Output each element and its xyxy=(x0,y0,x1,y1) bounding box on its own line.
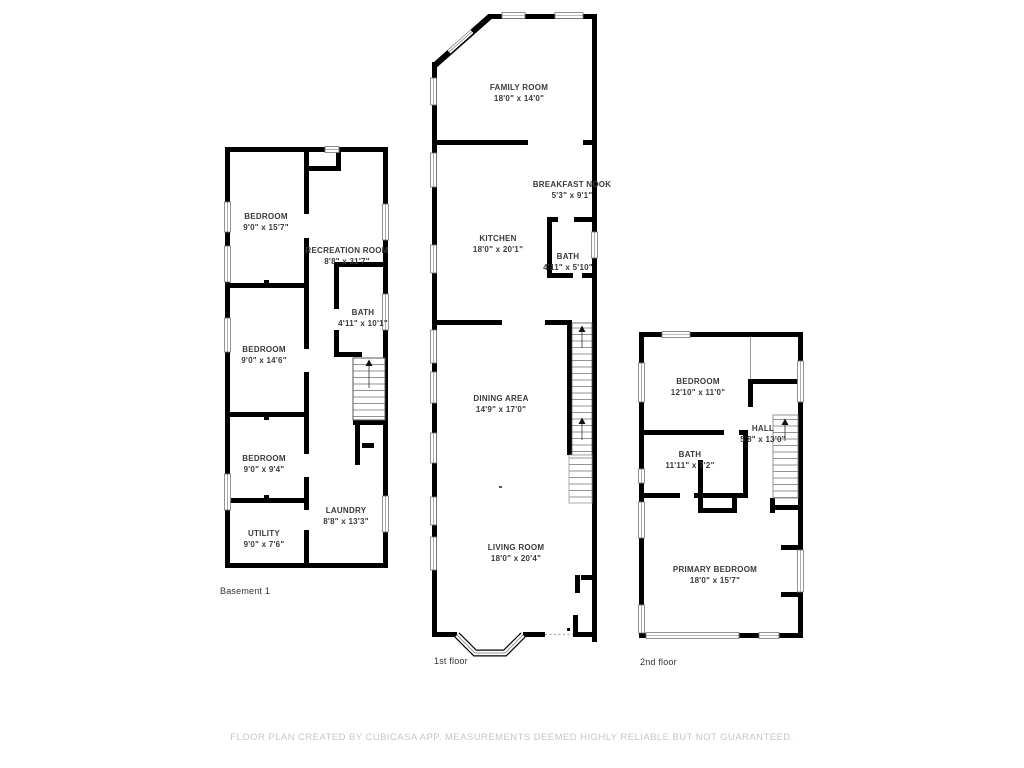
footer-disclaimer: FLOOR PLAN CREATED BY CUBICASA APP. MEAS… xyxy=(0,732,1024,743)
room-dims: 14'9" x 17'0" xyxy=(473,405,528,416)
room-name: HALL xyxy=(740,424,786,435)
first-floor-diagonal-wall xyxy=(434,17,490,67)
room-name: RECREATION ROOM xyxy=(305,246,388,257)
floor-label-basement: Basement 1 xyxy=(220,586,270,596)
room-dims: 18'0" x 20'4" xyxy=(488,554,545,565)
room-name: LIVING ROOM xyxy=(488,543,545,554)
room-name: UTILITY xyxy=(244,529,285,540)
room-dims: 11'11" x 7'2" xyxy=(665,461,714,472)
room-dims: 12'10" x 11'0" xyxy=(671,388,726,399)
room-dims: 9'0" x 7'6" xyxy=(244,540,285,551)
first-floor-stairs xyxy=(569,323,592,503)
room-label-second-floor-bath: BATH 11'11" x 7'2" xyxy=(665,450,714,471)
room-label-primary-bedroom: PRIMARY BEDROOM 18'0" x 15'7" xyxy=(673,565,757,586)
floorplan-first-floor xyxy=(428,10,602,670)
room-label-living-room: LIVING ROOM 18'0" x 20'4" xyxy=(488,543,545,564)
room-label-first-floor-bath: BATH 4'11" x 5'10" xyxy=(543,252,593,273)
room-label-basement-bath: BATH 4'11" x 10'1" xyxy=(338,308,388,329)
room-name: BEDROOM xyxy=(671,377,726,388)
room-name: BEDROOM xyxy=(242,454,286,465)
room-name: PRIMARY BEDROOM xyxy=(673,565,757,576)
floor-label-second-floor: 2nd floor xyxy=(640,657,677,667)
room-dims: 9'0" x 9'4" xyxy=(242,465,286,476)
room-name: BATH xyxy=(543,252,593,263)
room-name: FAMILY ROOM xyxy=(490,83,548,94)
bay-window xyxy=(457,635,573,654)
floor-label-first-floor: 1st floor xyxy=(434,656,468,666)
room-label-family-room: FAMILY ROOM 18'0" x 14'0" xyxy=(490,83,548,104)
room-dims: 9'0" x 15'7" xyxy=(243,223,289,234)
room-label-second-floor-bedroom: BEDROOM 12'10" x 11'0" xyxy=(671,377,726,398)
room-name: LAUNDRY xyxy=(323,506,369,517)
room-label-basement-utility: UTILITY 9'0" x 7'6" xyxy=(244,529,285,550)
room-name: BEDROOM xyxy=(241,345,287,356)
room-dims: 18'0" x 15'7" xyxy=(673,576,757,587)
basement-stairs xyxy=(353,358,385,420)
room-label-basement-bedroom-3: BEDROOM 9'0" x 9'4" xyxy=(242,454,286,475)
room-label-kitchen: KITCHEN 18'0" x 20'1" xyxy=(473,234,523,255)
room-label-breakfast-nook: BREAKFAST NOOK 5'3" x 9'1" xyxy=(533,180,612,201)
room-label-basement-recreation-room: RECREATION ROOM 8'8" x 31'7" xyxy=(305,246,388,267)
room-name: BEDROOM xyxy=(243,212,289,223)
room-name: DINING AREA xyxy=(473,394,528,405)
room-dims: 8'8" x 13'3" xyxy=(323,517,369,528)
room-label-basement-bedroom-1: BEDROOM 9'0" x 15'7" xyxy=(243,212,289,233)
room-name: BATH xyxy=(665,450,714,461)
room-label-dining-area: DINING AREA 14'9" x 17'0" xyxy=(473,394,528,415)
room-dims: 18'0" x 20'1" xyxy=(473,245,523,256)
room-name: BREAKFAST NOOK xyxy=(533,180,612,191)
room-dims: 4'11" x 10'1" xyxy=(338,319,388,330)
room-dims: 8'8" x 31'7" xyxy=(305,257,388,268)
room-dims: 9'0" x 14'6" xyxy=(241,356,287,367)
room-label-basement-laundry: LAUNDRY 8'8" x 13'3" xyxy=(323,506,369,527)
room-label-hall: HALL 5'8" x 13'0" xyxy=(740,424,786,445)
room-name: BATH xyxy=(338,308,388,319)
room-label-basement-bedroom-2: BEDROOM 9'0" x 14'6" xyxy=(241,345,287,366)
room-dims: 4'11" x 5'10" xyxy=(543,263,593,274)
room-dims: 18'0" x 14'0" xyxy=(490,94,548,105)
room-dims: 5'8" x 13'0" xyxy=(740,435,786,446)
room-dims: 5'3" x 9'1" xyxy=(533,191,612,202)
room-name: KITCHEN xyxy=(473,234,523,245)
